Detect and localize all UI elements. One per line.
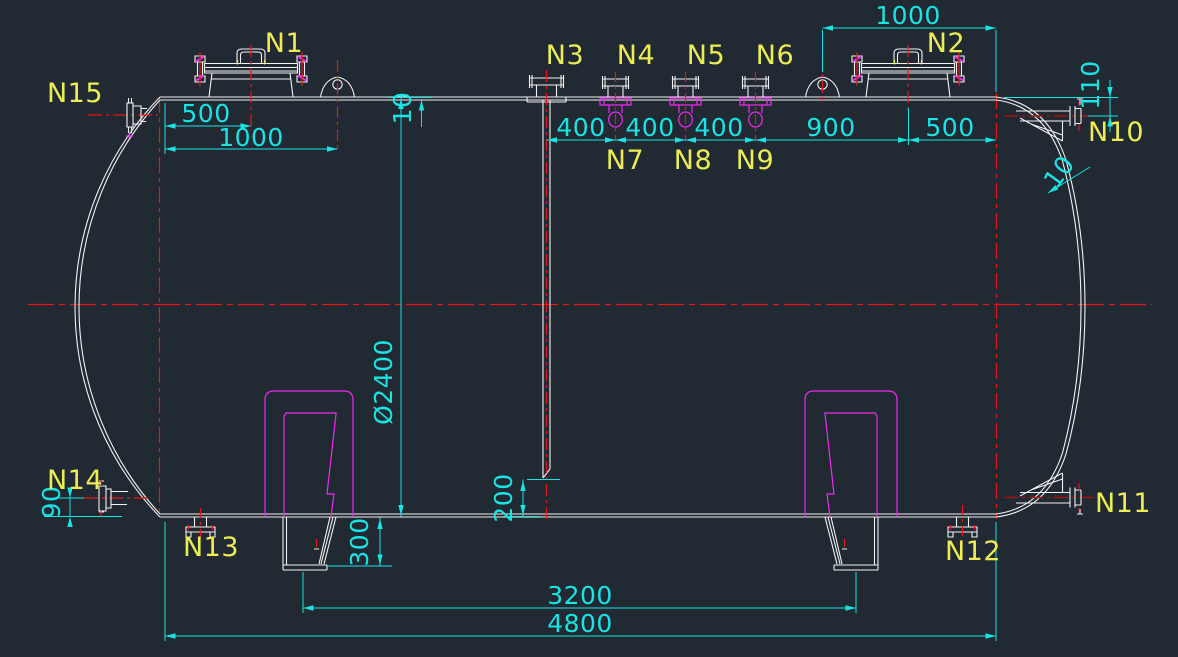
dim-200: 200	[489, 473, 518, 522]
dim-4800: 4800	[547, 609, 613, 638]
label-n1: N1	[265, 28, 303, 59]
label-n8: N8	[674, 145, 712, 176]
label-n11: N11	[1095, 488, 1151, 519]
cad-viewport: 500 1000 1000 400 400 400 900 500 110 10…	[0, 0, 1178, 657]
dim-400-c: 400	[694, 113, 743, 142]
dim-300: 300	[345, 517, 374, 566]
dim-110: 110	[1076, 60, 1105, 109]
label-n6: N6	[756, 40, 794, 71]
label-n3: N3	[546, 40, 584, 71]
label-n15: N15	[47, 78, 103, 109]
label-n9: N9	[736, 145, 774, 176]
label-n2: N2	[927, 28, 965, 59]
tank-drawing: 500 1000 1000 400 400 400 900 500 110 10…	[0, 0, 1178, 657]
dim-10-shell: 10	[388, 92, 417, 125]
dim-1000-left: 1000	[218, 123, 284, 152]
label-n13: N13	[183, 532, 239, 563]
dim-3200: 3200	[547, 581, 613, 610]
label-n10: N10	[1088, 117, 1144, 148]
dim-500-right: 500	[925, 113, 974, 142]
label-n12: N12	[945, 536, 1001, 567]
label-n14: N14	[47, 465, 103, 496]
dim-400-b: 400	[625, 113, 674, 142]
label-n4: N4	[617, 40, 655, 71]
dim-1000-topright: 1000	[875, 1, 941, 30]
dim-400-a: 400	[556, 113, 605, 142]
canvas-background	[0, 0, 1178, 657]
label-n7: N7	[606, 145, 644, 176]
label-n5: N5	[687, 40, 725, 71]
dim-900: 900	[806, 113, 855, 142]
dim-2400: Ø2400	[369, 339, 398, 425]
